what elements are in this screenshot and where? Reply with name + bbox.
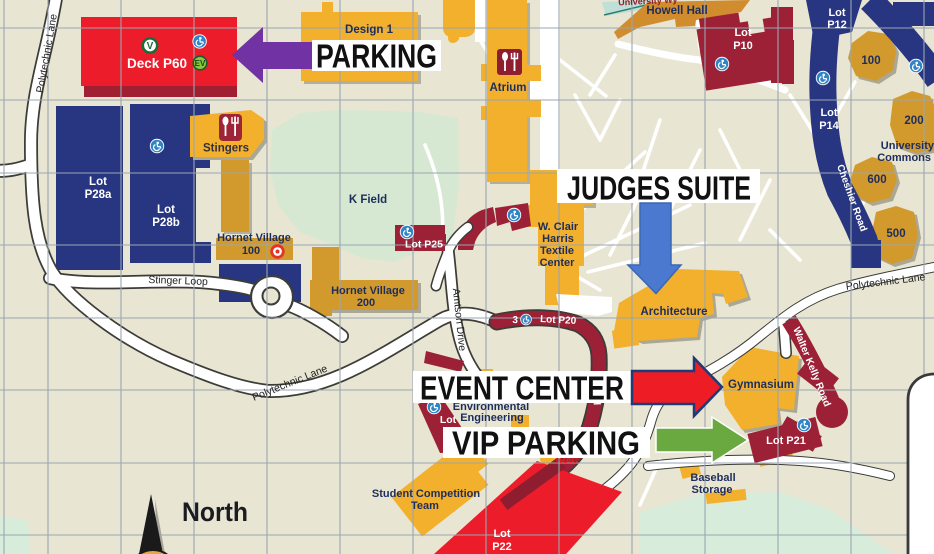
svg-text:EVENT CENTER: EVENT CENTER	[420, 370, 624, 407]
svg-text:3: 3	[512, 315, 519, 326]
svg-text:500: 500	[886, 228, 905, 240]
svg-text:Lot P20: Lot P20	[540, 314, 577, 327]
svg-text:Design 1: Design 1	[345, 24, 394, 36]
svg-text:Student Competition: Student Competition	[372, 488, 480, 500]
svg-text:JUDGES SUITE: JUDGES SUITE	[567, 170, 751, 207]
svg-text:Lot: Lot	[89, 176, 107, 188]
svg-text:K Field: K Field	[349, 194, 387, 206]
svg-text:Howell Hall: Howell Hall	[646, 5, 707, 17]
svg-text:Lot: Lot	[828, 7, 845, 19]
svg-text:Lot: Lot	[734, 27, 751, 39]
svg-text:Lot: Lot	[493, 528, 510, 540]
svg-text:Storage: Storage	[692, 484, 733, 496]
svg-text:200: 200	[357, 297, 375, 309]
svg-text:Stingers: Stingers	[203, 141, 249, 155]
svg-text:W. Clair: W. Clair	[538, 221, 579, 233]
svg-text:100: 100	[861, 55, 880, 67]
svg-text:200: 200	[904, 115, 923, 127]
svg-text:P12: P12	[827, 19, 847, 31]
svg-text:PARKING: PARKING	[316, 38, 437, 75]
svg-text:EV: EV	[195, 59, 206, 68]
svg-text:100: 100	[242, 245, 260, 257]
svg-text:Atrium: Atrium	[489, 82, 526, 94]
svg-text:P22: P22	[492, 541, 512, 553]
svg-text:Lot P25: Lot P25	[405, 239, 443, 251]
svg-text:P14: P14	[819, 120, 839, 132]
svg-text:Textile: Textile	[540, 245, 574, 257]
svg-text:Hornet Village: Hornet Village	[217, 232, 291, 244]
svg-text:Engineering: Engineering	[460, 412, 524, 424]
svg-text:North: North	[182, 497, 248, 527]
svg-text:P28b: P28b	[152, 217, 180, 229]
svg-text:P28a: P28a	[85, 189, 112, 201]
svg-text:Lot: Lot	[820, 107, 837, 119]
svg-text:Stinger Loop: Stinger Loop	[148, 274, 208, 288]
svg-text:Team: Team	[411, 500, 439, 512]
svg-text:Gymnasium: Gymnasium	[728, 379, 794, 391]
svg-text:Center: Center	[540, 257, 576, 269]
svg-text:Harris: Harris	[542, 233, 574, 245]
svg-text:Architecture: Architecture	[641, 306, 708, 318]
svg-text:Baseball: Baseball	[690, 472, 735, 484]
svg-text:P10: P10	[733, 40, 753, 52]
svg-text:Commons: Commons	[877, 152, 931, 164]
svg-text:600: 600	[867, 174, 886, 186]
svg-text:University: University	[881, 140, 934, 152]
svg-text:Lot P21: Lot P21	[766, 435, 806, 447]
svg-text:Lot: Lot	[157, 204, 175, 216]
svg-text:Hornet Village: Hornet Village	[331, 285, 405, 297]
svg-text:Deck P60: Deck P60	[127, 56, 187, 71]
svg-text:V: V	[147, 41, 154, 52]
svg-text:VIP PARKING: VIP PARKING	[452, 425, 640, 462]
